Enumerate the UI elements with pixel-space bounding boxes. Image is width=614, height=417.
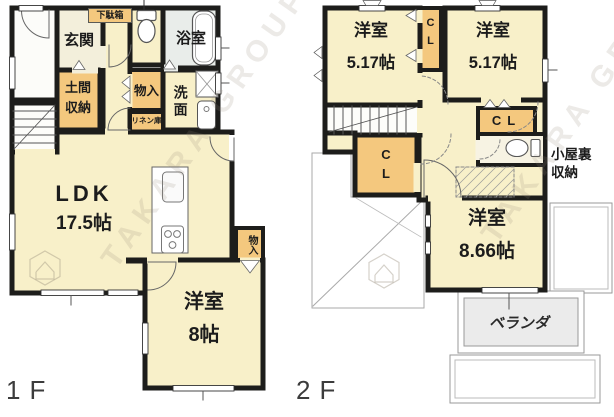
closet-top [420,8,441,70]
room-bedroom-a [325,8,420,105]
room-bedroom-8 [145,260,263,388]
closet-linen [130,112,163,132]
closet-right [478,108,535,134]
closet-left [355,135,417,195]
roof-bottom [450,355,600,403]
floor-2f [312,1,612,404]
closet-monoire-1f [130,70,163,110]
floor-plan: TAKARA GROUP TAKARA GROUP 下駄箱 玄関 浴室 土間 収… [0,0,614,417]
toilet-1f [137,11,156,43]
stove [162,226,184,253]
veranda [458,291,584,353]
roof-right [550,203,612,293]
room-bedroom-b [445,8,545,100]
closet-monoire-bedroom [236,228,263,260]
landing-2f [325,133,355,152]
room-genkan [57,8,103,70]
room-doma-storage [57,70,100,130]
hall-1f [103,8,130,134]
bathtub [193,11,216,65]
room-porch [12,8,57,100]
